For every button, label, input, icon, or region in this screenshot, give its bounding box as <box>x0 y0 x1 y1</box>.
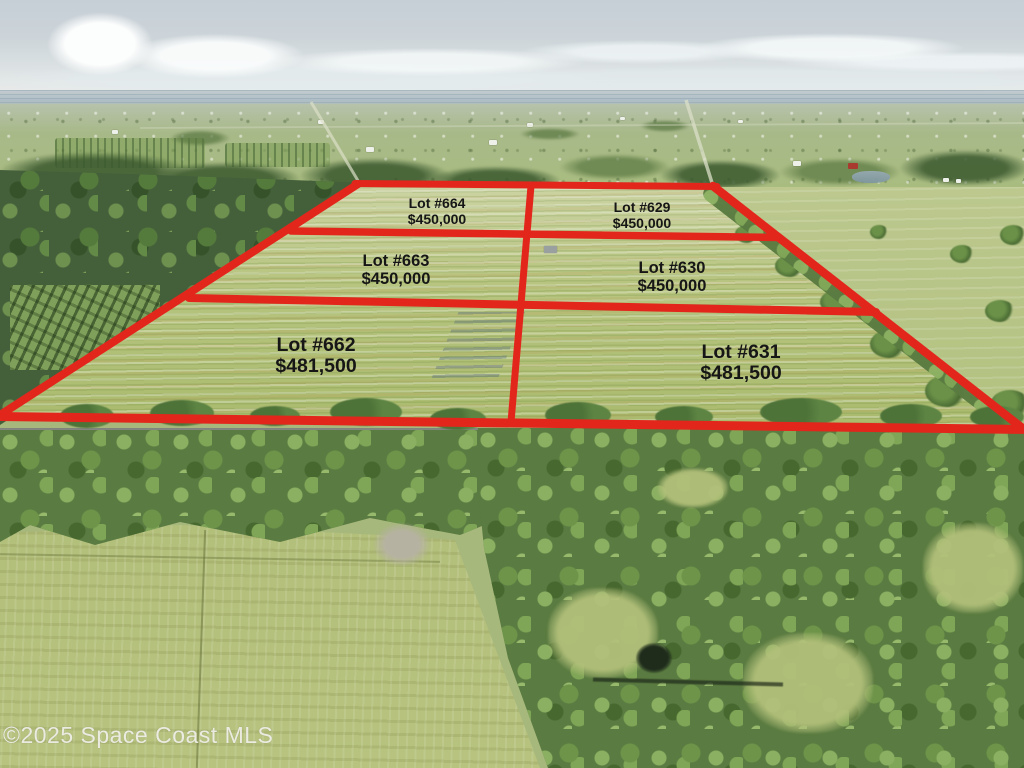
lot-boundary-overlay <box>0 0 1024 768</box>
boundary-top <box>355 184 717 187</box>
lot-663-price: $450,000 <box>362 270 431 288</box>
lot-630-name: Lot #630 <box>638 259 707 277</box>
divider-row-upper <box>291 231 779 238</box>
mls-watermark: ©2025 Space Coast MLS <box>3 722 273 749</box>
lot-630-label: Lot #630 $450,000 <box>638 259 707 295</box>
dirt-road <box>311 102 360 184</box>
aerial-listing-photo: Lot #664 $450,000 Lot #629 $450,000 Lot … <box>0 0 1024 768</box>
dirt-road <box>686 100 713 186</box>
lot-663-label: Lot #663 $450,000 <box>362 252 431 288</box>
lot-629-price: $450,000 <box>613 216 671 232</box>
lot-629-name: Lot #629 <box>613 200 671 216</box>
lot-631-label: Lot #631 $481,500 <box>700 342 781 384</box>
lot-663-name: Lot #663 <box>362 252 431 270</box>
distant-road <box>140 123 1024 128</box>
lot-662-label: Lot #662 $481,500 <box>275 335 356 377</box>
lot-664-label: Lot #664 $450,000 <box>408 196 466 227</box>
lot-629-label: Lot #629 $450,000 <box>613 200 671 231</box>
lot-631-name: Lot #631 <box>700 342 781 363</box>
lot-631-price: $481,500 <box>700 363 781 384</box>
divider-row-lower <box>189 298 876 312</box>
lot-664-price: $450,000 <box>408 212 466 228</box>
lot-662-name: Lot #662 <box>275 335 356 356</box>
lot-664-name: Lot #664 <box>408 196 466 212</box>
lot-630-price: $450,000 <box>638 277 707 295</box>
lot-662-price: $481,500 <box>275 356 356 377</box>
